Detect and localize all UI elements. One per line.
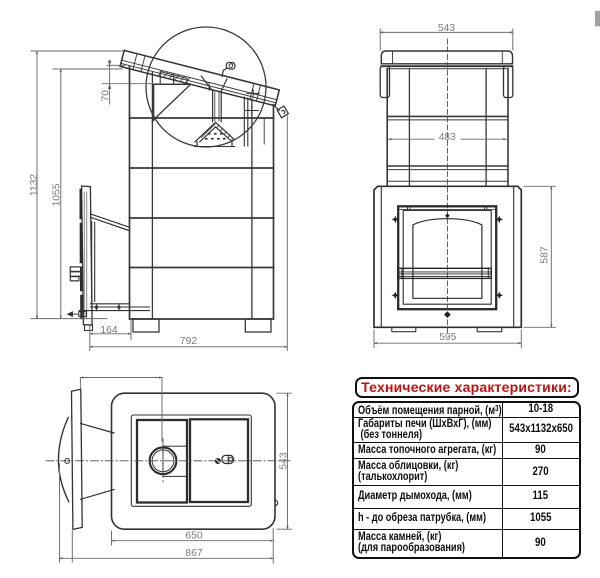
svg-text:595: 595 <box>439 332 456 343</box>
svg-text:587: 587 <box>540 246 551 263</box>
svg-text:1055: 1055 <box>52 183 63 206</box>
svg-text:543: 543 <box>278 452 289 469</box>
svg-text:867: 867 <box>185 548 202 559</box>
svg-text:650: 650 <box>185 531 202 542</box>
svg-text:483: 483 <box>439 132 456 143</box>
svg-text:1132: 1132 <box>29 174 40 196</box>
svg-text:70: 70 <box>101 90 112 102</box>
svg-text:792: 792 <box>180 336 197 347</box>
svg-text:543: 543 <box>438 23 455 34</box>
svg-text:164: 164 <box>100 325 117 336</box>
